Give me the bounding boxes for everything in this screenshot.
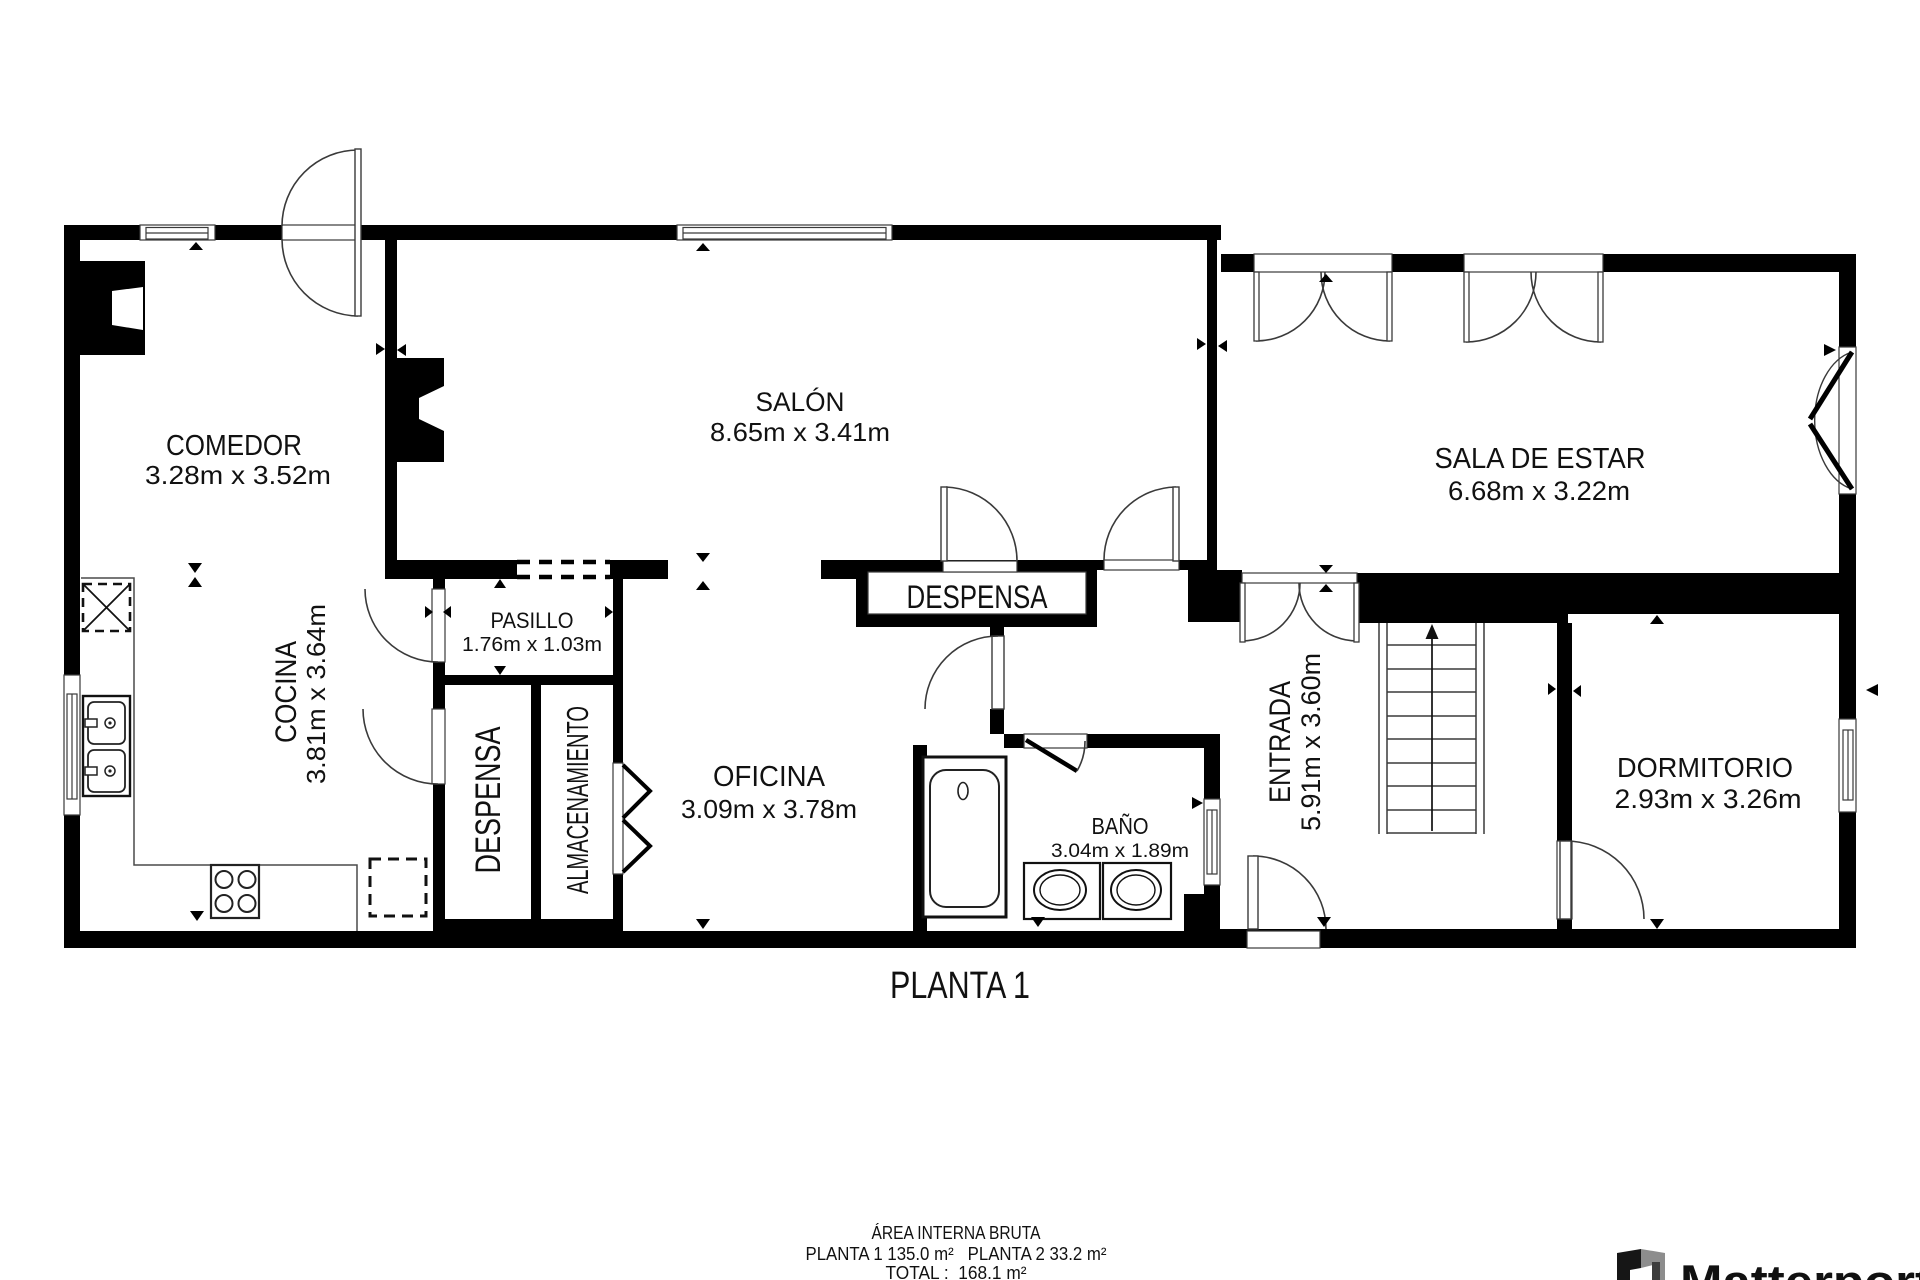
svg-text:ENTRADA: ENTRADA (1264, 681, 1297, 803)
svg-text:ALMACENAMIENTO: ALMACENAMIENTO (560, 706, 595, 894)
svg-text:OFICINA: OFICINA (713, 761, 826, 793)
svg-text:6.68m x 3.22m: 6.68m x 3.22m (1448, 476, 1630, 506)
svg-text:SALÓN: SALÓN (756, 386, 845, 417)
svg-text:3.28m x 3.52m: 3.28m x 3.52m (145, 460, 331, 490)
svg-text:COMEDOR: COMEDOR (166, 430, 302, 462)
svg-text:PLANTA 1: PLANTA 1 (890, 965, 1030, 1007)
svg-text:8.65m x 3.41m: 8.65m x 3.41m (710, 417, 890, 447)
svg-text:5.91m x 3.60m: 5.91m x 3.60m (1296, 653, 1326, 831)
svg-text:BAÑO: BAÑO (1092, 813, 1149, 839)
svg-text:ÁREA INTERNA BRUTA: ÁREA INTERNA BRUTA (872, 1223, 1041, 1243)
svg-text:Matterport: Matterport (1680, 1255, 1920, 1280)
svg-text:PLANTA 1 135.0 m² PLANTA 2 3: PLANTA 1 135.0 m² PLANTA 2 33.2 m² (806, 1244, 1107, 1264)
svg-text:1.76m x 1.03m: 1.76m x 1.03m (462, 633, 602, 656)
svg-text:SALA DE ESTAR: SALA DE ESTAR (1435, 443, 1646, 475)
svg-text:DORMITORIO: DORMITORIO (1617, 752, 1793, 783)
svg-text:DESPENSA: DESPENSA (469, 726, 508, 874)
svg-text:DESPENSA: DESPENSA (907, 579, 1049, 615)
svg-text:3.09m x 3.78m: 3.09m x 3.78m (681, 794, 857, 824)
svg-text:2.93m x 3.26m: 2.93m x 3.26m (1615, 784, 1802, 814)
svg-text:3.81m x 3.64m: 3.81m x 3.64m (301, 604, 331, 784)
svg-text:3.04m x 1.89m: 3.04m x 1.89m (1051, 840, 1189, 862)
svg-text:PASILLO: PASILLO (491, 608, 574, 633)
svg-text:TOTAL : 168.1 m²: TOTAL : 168.1 m² (886, 1263, 1027, 1280)
svg-text:COCINA: COCINA (270, 641, 303, 743)
